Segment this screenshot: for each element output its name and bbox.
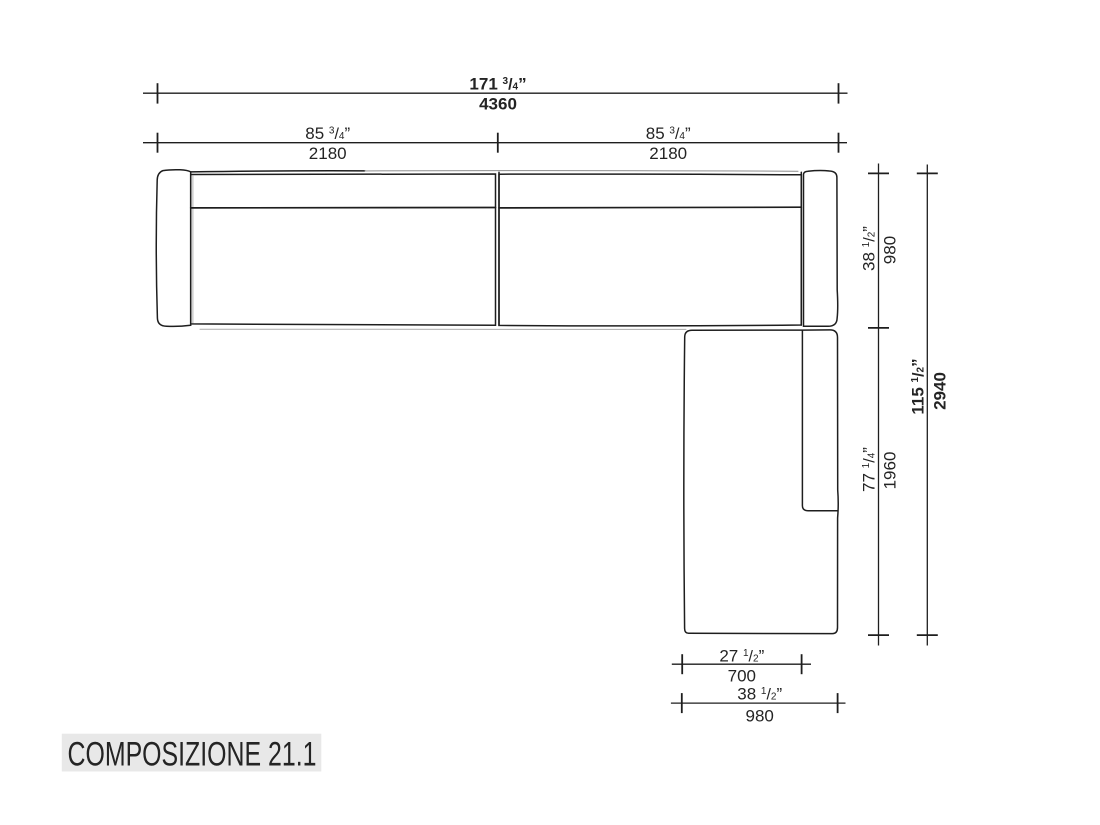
svg-text:38 1/2”: 38 1/2” — [737, 685, 782, 704]
svg-text:980: 980 — [746, 707, 774, 726]
svg-text:171 3/4”: 171 3/4” — [469, 74, 526, 93]
svg-text:27 1/2”: 27 1/2” — [719, 647, 764, 666]
svg-text:85 3/4”: 85 3/4” — [305, 124, 350, 143]
svg-text:38 1/2”: 38 1/2” — [860, 226, 879, 271]
svg-text:4360: 4360 — [479, 95, 517, 114]
svg-text:2180: 2180 — [649, 144, 687, 163]
svg-text:2180: 2180 — [309, 144, 347, 163]
svg-text:1960: 1960 — [881, 452, 900, 490]
svg-text:980: 980 — [881, 236, 900, 264]
svg-text:2940: 2940 — [930, 372, 949, 410]
svg-text:COMPOSIZIONE 21.1: COMPOSIZIONE 21.1 — [68, 736, 317, 774]
svg-text:85 3/4”: 85 3/4” — [646, 124, 691, 143]
svg-text:77 1/4”: 77 1/4” — [860, 447, 879, 492]
svg-text:700: 700 — [728, 666, 756, 685]
svg-text:115 1/2”: 115 1/2” — [908, 358, 927, 414]
